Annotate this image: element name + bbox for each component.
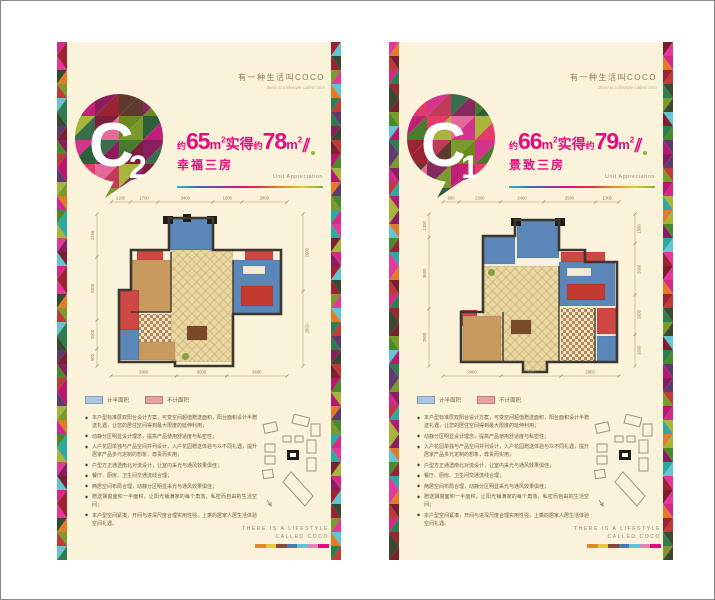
svg-text:1500: 1500	[90, 329, 95, 339]
svg-text:3000: 3000	[526, 370, 536, 375]
footer-bar-segment	[255, 544, 266, 548]
selling-point-text: 入户花园单独与产品空间并列设计，入户花园赠送体验与众不同礼遇，提升居家产品多元定…	[92, 444, 257, 458]
floor-plan-c1: 9002300240029001300290030002900120036002…	[407, 192, 651, 382]
half-area-swatch	[417, 396, 435, 404]
selling-point-item: ◆动静分区明显设计理念，提高产品使用舒适度与私密性；	[417, 433, 589, 441]
selling-point-item: ◆本户型标准层双阳台设计方案，可变空间超值赠送面积，阳台面积设计半赠送礼遇，让您…	[417, 414, 589, 430]
footer-bar-segment	[587, 544, 598, 548]
approx-label2: 约	[586, 141, 595, 151]
selling-point-text: 餐厅、厨房、卫生间交通流线合理；	[92, 473, 172, 479]
svg-text:1500: 1500	[637, 223, 642, 233]
footer-bar-segment	[297, 544, 308, 548]
brand-title: 有一种生活叫COCO	[238, 72, 325, 83]
footer-signature: THERE IS A LIFESTYLE CALLED COCO	[242, 526, 329, 548]
no-area-label: 不计面积	[499, 396, 521, 404]
legend-no-area: 不计面积	[477, 396, 521, 404]
selling-points-list: ◆本户型标准层双阳台设计方案，可变空间超值赠送面积，阳台面积设计半赠送礼遇，让您…	[85, 414, 257, 530]
footer-line1: THERE IS A LIFESTYLE	[574, 526, 661, 534]
unit-label: m	[542, 137, 554, 152]
diamond-bullet-icon: ◆	[417, 473, 420, 479]
diamond-bullet-icon: ◆	[417, 512, 420, 518]
approx-label: 约	[177, 141, 186, 151]
svg-text:1800: 1800	[223, 196, 233, 201]
flyer-panel-c1: 有一种生活叫COCO there is a lifestyle called c…	[389, 42, 673, 560]
footer-bar-segment	[276, 544, 287, 548]
mosaic-border-left	[57, 42, 67, 560]
footer-bar-segment	[318, 544, 329, 548]
selling-point-text: 餐厅、厨房、卫生间交通流线合理；	[424, 473, 504, 479]
selling-point-item: ◆本户型空间紧凑，开间与进深尺度合理实用性强，上乘的居家人居生活体验空间礼遇。	[85, 512, 257, 528]
diamond-bullet-icon: ◆	[417, 494, 420, 500]
svg-text:3600: 3600	[252, 370, 262, 375]
unit-appreciation-label: Unit Appreciation	[273, 174, 323, 180]
svg-text:C: C	[421, 111, 466, 180]
half-area-swatch	[85, 396, 103, 404]
green-dot-icon	[311, 151, 315, 155]
brand-title: 有一种生活叫COCO	[570, 72, 657, 83]
svg-text:2900: 2900	[422, 332, 427, 342]
gross-area-number: 65	[186, 128, 210, 154]
footer-bar-segment	[619, 544, 630, 548]
footer-bar-segment	[287, 544, 298, 548]
diamond-bullet-icon: ◆	[85, 433, 88, 439]
svg-text:3000: 3000	[197, 370, 207, 375]
footer-line2: CALLED COCO	[574, 534, 661, 542]
footer-bar-segment	[598, 544, 609, 548]
svg-text:1700: 1700	[139, 196, 149, 201]
gross-area-number: 66	[518, 128, 542, 154]
floor-plan-c2: 1200170034001800280039003000360022503300…	[75, 192, 319, 382]
diamond-bullet-icon: ◆	[417, 462, 420, 468]
area-legend: 计半面积 不计面积	[85, 396, 189, 404]
diamond-bullet-icon: ◆	[85, 483, 88, 489]
selling-point-item: ◆餐厅、厨房、卫生间交通流线合理；	[85, 472, 257, 480]
svg-text:3300: 3300	[90, 283, 95, 293]
footer-bar-segment	[308, 544, 319, 548]
footer-bar-segment	[629, 544, 640, 548]
diamond-bullet-icon: ◆	[85, 444, 88, 450]
svg-text:1: 1	[461, 149, 479, 185]
selling-point-text: 两居空间布局合理，动静分区明显采光与通风效果俱佳；	[424, 484, 549, 490]
diamond-bullet-icon: ◆	[85, 494, 88, 500]
brand-tagline: there is a lifestyle called coco	[570, 85, 657, 90]
brand-tagline: there is a lifestyle called coco	[238, 85, 325, 90]
svg-text:1300: 1300	[603, 196, 613, 201]
subtitle-underline: Unit Appreciation	[177, 178, 323, 188]
svg-text:2800: 2800	[305, 323, 310, 333]
svg-text:2300: 2300	[475, 196, 485, 201]
diamond-bullet-icon: ◆	[85, 512, 88, 518]
selling-point-text: 本户型空间紧凑，开间与进深尺度合理实用性强，上乘的居家人居生活体验空间礼遇。	[424, 513, 589, 527]
svg-text:2: 2	[129, 149, 147, 185]
no-area-swatch	[477, 396, 495, 404]
svg-text:2600: 2600	[637, 264, 642, 274]
svg-text:900: 900	[90, 353, 95, 361]
selling-point-text: 赠送飘窗面积一半面积，让阳光铺满家的每个角落，私密而自由的生活空间；	[92, 494, 257, 508]
rainbow-line	[177, 186, 323, 188]
selling-point-item: ◆赠送飘窗面积一半面积，让阳光铺满家的每个角落，私密而自由的生活空间；	[417, 493, 589, 509]
footer-color-bar	[255, 544, 329, 548]
selling-point-item: ◆餐厅、厨房、卫生间交通流线合理；	[417, 472, 589, 480]
diamond-bullet-icon: ◆	[85, 415, 88, 421]
svg-text:2900: 2900	[565, 196, 575, 201]
approx-label: 约	[509, 141, 518, 151]
footer-line2: CALLED COCO	[242, 534, 329, 542]
selling-point-item: ◆动静分区明显设计理念，提高产品使用舒适度与私密性；	[85, 433, 257, 441]
selling-point-item: ◆本户型标准层双阳台设计方案，可变空间超值赠送面积，阳台面积设计半赠送礼遇，让您…	[85, 414, 257, 430]
legend-half-area: 计半面积	[85, 396, 129, 404]
half-area-label: 计半面积	[439, 396, 461, 404]
area-headline: 约65m2实得约78m2∥	[177, 128, 315, 155]
footer-signature: THERE IS A LIFESTYLE CALLED COCO	[574, 526, 661, 548]
footer-line1: THERE IS A LIFESTYLE	[242, 526, 329, 534]
site-key-plan	[593, 414, 659, 518]
unit-label: m	[210, 137, 222, 152]
diamond-bullet-icon: ◆	[417, 444, 420, 450]
svg-text:2000: 2000	[637, 309, 642, 319]
svg-text:1200: 1200	[116, 196, 126, 201]
selling-point-text: 本户型标准层双阳台设计方案，可变空间超值赠送面积，阳台面积设计半赠送礼遇，让您的…	[92, 415, 257, 429]
svg-text:2800: 2800	[260, 196, 270, 201]
area-legend: 计半面积 不计面积	[417, 396, 521, 404]
footer-bar-segment	[640, 544, 651, 548]
selling-point-text: 动静分区明显设计理念，提高产品使用舒适度与私密性；	[424, 434, 549, 440]
diamond-bullet-icon: ◆	[85, 462, 88, 468]
selling-point-item: ◆赠送飘窗面积一半面积，让阳光铺满家的每个角落，私密而自由的生活空间；	[85, 493, 257, 509]
selling-point-text: 两居空间布局合理，动静分区明显采光与通风效果俱佳；	[92, 484, 217, 490]
diamond-bullet-icon: ◆	[417, 415, 420, 421]
svg-text:2400: 2400	[517, 196, 527, 201]
selling-point-text: 本户型标准层双阳台设计方案，可变空间超值赠送面积，阳台面积设计半赠送礼遇，让您的…	[424, 415, 589, 429]
unit-subtitle: 景致三房	[509, 156, 565, 173]
diamond-bullet-icon: ◆	[417, 483, 420, 489]
svg-text:3900: 3900	[139, 370, 149, 375]
footer-bar-segment	[608, 544, 619, 548]
selling-point-item: ◆户型方正通透南北对流设计，让室内采光与通风效果俱佳；	[85, 462, 257, 470]
actual-area-number: 79	[595, 128, 619, 154]
selling-point-text: 户型方正通透南北对流设计，让室内采光与通风效果俱佳；	[424, 463, 554, 469]
unit-appreciation-label: Unit Appreciation	[605, 174, 655, 180]
svg-text:2900: 2900	[585, 370, 595, 375]
svg-text:1200: 1200	[422, 221, 427, 231]
selling-points-list: ◆本户型标准层双阳台设计方案，可变空间超值赠送面积，阳台面积设计半赠送礼遇，让您…	[417, 414, 589, 530]
diamond-bullet-icon: ◆	[85, 473, 88, 479]
no-area-label: 不计面积	[167, 396, 189, 404]
svg-text:3600: 3600	[422, 268, 427, 278]
footer-color-bar	[587, 544, 661, 548]
selling-point-text: 赠送飘窗面积一半面积，让阳光铺满家的每个角落，私密而自由的生活空间；	[424, 494, 589, 508]
mosaic-border-left	[389, 42, 399, 560]
actual-label: 实得	[558, 136, 586, 152]
green-dot-icon	[643, 151, 647, 155]
half-area-label: 计半面积	[107, 396, 129, 404]
svg-text:3400: 3400	[181, 196, 191, 201]
selling-point-text: 本户型空间紧凑，开间与进深尺度合理实用性强，上乘的居家人居生活体验空间礼遇。	[92, 513, 257, 527]
svg-text:2250: 2250	[90, 230, 95, 240]
rainbow-line	[509, 186, 655, 188]
svg-text:900: 900	[448, 196, 456, 201]
svg-text:1600: 1600	[637, 345, 642, 355]
page-canvas: 有一种生活叫COCO there is a lifestyle called c…	[0, 0, 715, 600]
selling-point-text: 入户花园单独与产品空间并列设计，入户花园赠送体验与众不同礼遇，提升居家产品多元定…	[424, 444, 589, 458]
selling-point-item: ◆入户花园单独与产品空间并列设计，入户花园赠送体验与众不同礼遇，提升居家产品多元…	[417, 443, 589, 459]
selling-point-item: ◆两居空间布局合理，动静分区明显采光与通风效果俱佳；	[417, 483, 589, 491]
svg-text:2900: 2900	[305, 247, 310, 257]
approx-label2: 约	[254, 141, 263, 151]
site-key-plan	[261, 414, 327, 518]
svg-text:C: C	[89, 111, 134, 180]
unit-badge-c2: C2	[71, 92, 167, 204]
selling-point-item: ◆户型方正通透南北对流设计，让室内采光与通风效果俱佳；	[417, 462, 589, 470]
mosaic-border-right	[663, 42, 673, 560]
brand-header: 有一种生活叫COCO there is a lifestyle called c…	[238, 72, 325, 90]
flyer-panel-c2: 有一种生活叫COCO there is a lifestyle called c…	[57, 42, 341, 560]
no-area-swatch	[145, 396, 163, 404]
selling-point-item: ◆入户花园单独与产品空间并列设计，入户花园赠送体验与众不同礼遇，提升居家产品多元…	[85, 443, 257, 459]
diamond-bullet-icon: ◆	[417, 433, 420, 439]
actual-area-number: 78	[263, 128, 287, 154]
actual-label: 实得	[226, 136, 254, 152]
unit-badge-c1: C1	[403, 92, 499, 204]
selling-point-item: ◆两居空间布局合理，动静分区明显采光与通风效果俱佳；	[85, 483, 257, 491]
selling-point-text: 动静分区明显设计理念，提高产品使用舒适度与私密性；	[92, 434, 217, 440]
footer-bar-segment	[266, 544, 277, 548]
selling-point-item: ◆本户型空间紧凑，开间与进深尺度合理实用性强，上乘的居家人居生活体验空间礼遇。	[417, 512, 589, 528]
area-headline: 约66m2实得约79m2∥	[509, 128, 647, 155]
brand-header: 有一种生活叫COCO there is a lifestyle called c…	[570, 72, 657, 90]
mosaic-border-right	[331, 42, 341, 560]
unit-subtitle: 幸福三房	[177, 156, 233, 173]
footer-bar-segment	[650, 544, 661, 548]
legend-half-area: 计半面积	[417, 396, 461, 404]
svg-text:2900: 2900	[467, 370, 477, 375]
selling-point-text: 户型方正通透南北对流设计，让室内采光与通风效果俱佳；	[92, 463, 222, 469]
legend-no-area: 不计面积	[145, 396, 189, 404]
subtitle-underline: Unit Appreciation	[509, 178, 655, 188]
